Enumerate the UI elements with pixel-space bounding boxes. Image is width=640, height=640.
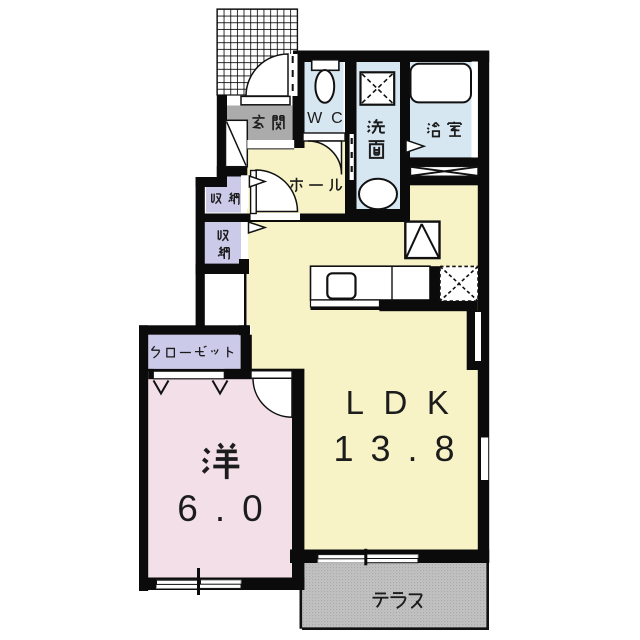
- svg-text:6.0: 6.0: [177, 488, 279, 529]
- svg-text:WC: WC: [307, 110, 352, 127]
- svg-text:LDK: LDK: [346, 384, 469, 421]
- svg-text:13.8: 13.8: [333, 428, 471, 469]
